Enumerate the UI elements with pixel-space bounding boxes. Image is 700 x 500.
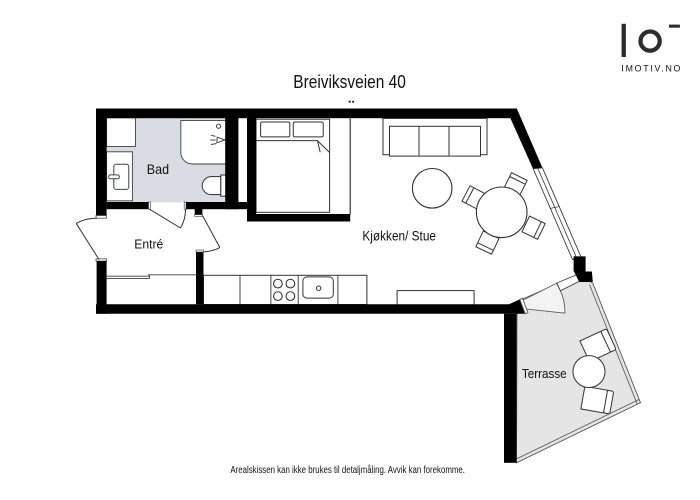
svg-text:Terrasse: Terrasse bbox=[522, 366, 567, 381]
svg-text:Breiviksveien 40: Breiviksveien 40 bbox=[293, 71, 406, 92]
svg-text:Arealskissen kan ikke brukes t: Arealskissen kan ikke brukes til detaljm… bbox=[230, 464, 465, 476]
svg-text:Bad: Bad bbox=[147, 161, 169, 177]
svg-text:IMOTIV.NO: IMOTIV.NO bbox=[621, 64, 680, 74]
svg-text:Kjøkken/ Stue: Kjøkken/ Stue bbox=[362, 228, 436, 244]
svg-text:Entré: Entré bbox=[134, 237, 163, 252]
